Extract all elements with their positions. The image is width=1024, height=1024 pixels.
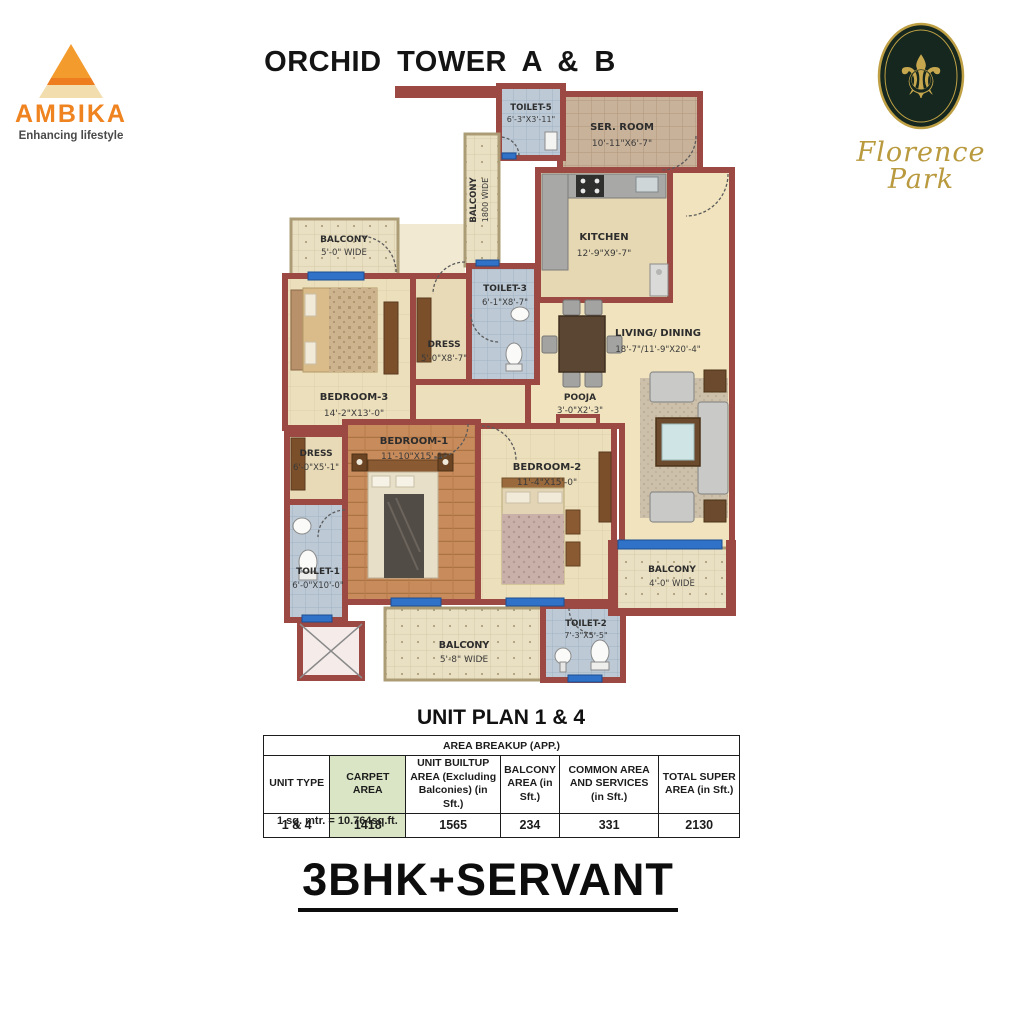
wardrobe-icon (599, 452, 611, 522)
unit-plan-title: UNIT PLAN 1 & 4 (263, 706, 739, 730)
col-total-area: TOTAL SUPER AREA (in Sft.) (659, 756, 740, 814)
label-bedroom3: BEDROOM-3 (320, 392, 389, 403)
bed-icon (368, 460, 438, 578)
washbasin-icon (511, 307, 529, 321)
side-table-icon (704, 370, 726, 392)
label-balcony-bottom: BALCONY (439, 640, 490, 651)
dims-bedroom3: 14'-2"X13'-0" (324, 409, 384, 419)
dresser-icon (384, 302, 398, 374)
dims-pooja: 3'-0"X2'-3" (557, 406, 603, 416)
florence-park-logo: ⚜ Florence Park (826, 20, 1016, 193)
label-toilet3: TOILET-3 (483, 284, 527, 294)
dims-toilet2: 7'-3"X5'-5" (564, 631, 607, 640)
bed-icon (502, 478, 564, 584)
col-balcony-area: BALCONY AREA (in Sft.) (501, 756, 560, 814)
dims-toilet5: 6'-3"X3'-11" (507, 115, 555, 124)
washbasin-icon (545, 132, 557, 150)
stove-icon (576, 175, 604, 197)
label-pooja: POOJA (564, 393, 596, 403)
val-balcony: 234 (501, 813, 560, 837)
dims-balcony-right: 4'-0" WIDE (649, 579, 695, 589)
sink-icon (636, 177, 658, 192)
side-table-icon (704, 500, 726, 522)
wall-balcony-left (608, 540, 618, 612)
label-dress3: DRESS (427, 340, 460, 350)
label-balcony-side: BALCONY (469, 177, 479, 223)
col-unit-type: UNIT TYPE (264, 756, 330, 814)
kitchen-counter-left (542, 174, 568, 270)
fridge-icon (650, 264, 668, 296)
bed-icon (291, 288, 377, 372)
dims-toilet3: 6'-1"X8'-7" (482, 298, 528, 308)
ambika-tagline: Enhancing lifestyle (6, 130, 136, 142)
dims-dress1: 6'-0"X5'-1" (293, 463, 339, 473)
floor-plan: TOILET-5 6'-3"X3'-11" SER. ROOM 10'-11"X… (266, 74, 750, 716)
val-common: 331 (559, 813, 659, 837)
sofa-icon (640, 370, 728, 522)
room-bedroom2 (478, 426, 614, 602)
plan-type-title: 3BHK+SERVANT (238, 854, 738, 912)
label-dress1: DRESS (299, 449, 332, 459)
label-toilet2: TOILET-2 (565, 619, 606, 629)
fleur-de-lis-icon: ⚜ (826, 20, 1016, 132)
dims-bedroom1: 11'-10"X15'-1" (381, 452, 447, 462)
dims-toilet1: 6'-0"X10'-0" (292, 581, 344, 591)
wardrobe-icon (417, 298, 431, 362)
wall-right (726, 540, 736, 616)
dims-kitchen: 12'-9"X9'-7" (577, 249, 632, 259)
nightstand-icon (352, 454, 367, 471)
table-caption: AREA BREAKUP (APP.) (264, 736, 740, 756)
bench-icon (566, 510, 580, 534)
dims-balcony-side: 1800 WIDE (481, 178, 490, 222)
washbasin-icon (293, 518, 311, 534)
wall-stub (395, 86, 501, 98)
wc-icon (591, 640, 609, 670)
label-bedroom1: BEDROOM-1 (380, 436, 449, 447)
label-balcony-right: BALCONY (648, 565, 696, 575)
passage-upper (398, 224, 465, 276)
col-builtup-area: UNIT BUILTUP AREA (Excluding Balconies) … (406, 756, 501, 814)
label-kitchen: KITCHEN (579, 232, 628, 243)
page: AMBIKA Enhancing lifestyle ORCHID TOWER … (0, 0, 1024, 1024)
label-balcony-tl: BALCONY (320, 235, 368, 245)
room-toilet1 (287, 502, 345, 620)
room-toilet2 (543, 606, 623, 680)
ambika-name: AMBIKA (6, 102, 136, 127)
plan-type-text: 3BHK+SERVANT (298, 854, 678, 912)
label-toilet5: TOILET-5 (510, 103, 551, 113)
bench-icon (566, 542, 580, 566)
dims-balcony-bottom: 5'-8" WIDE (440, 655, 489, 665)
room-bedroom3 (285, 276, 413, 428)
room-dress3 (413, 276, 469, 382)
label-bedroom2: BEDROOM-2 (513, 462, 582, 473)
val-total: 2130 (659, 813, 740, 837)
coffee-table-icon (656, 418, 700, 466)
florence-park-name: Florence Park (826, 139, 1016, 193)
label-living: LIVING/ DINING (615, 328, 701, 339)
dims-balcony-tl: 5'-0" WIDE (321, 248, 367, 258)
svg-text:⚜: ⚜ (894, 43, 948, 113)
ambika-triangle-icon (38, 44, 104, 100)
room-bedroom1 (345, 422, 478, 602)
dims-bedroom2: 11'-4"X15'-0" (517, 478, 577, 488)
ambika-logo: AMBIKA Enhancing lifestyle (6, 44, 136, 142)
dims-servant: 10'-11"X6'-7" (592, 139, 652, 149)
label-servant: SER. ROOM (590, 122, 654, 133)
val-builtup: 1565 (406, 813, 501, 837)
wc-icon (506, 343, 522, 371)
conversion-note: 1 sq. mtr. = 10.764sq.ft. (277, 815, 398, 827)
dims-living: 18'-7"/11'-9"X20'-4" (615, 345, 700, 355)
col-carpet-area: CARPET AREA (330, 756, 406, 814)
table-header-row: UNIT TYPE CARPET AREA UNIT BUILTUP AREA … (264, 756, 740, 814)
col-common-area: COMMON AREA AND SERVICES (in Sft.) (559, 756, 659, 814)
shaft (300, 624, 362, 678)
label-toilet1: TOILET-1 (296, 567, 340, 577)
wall-balcony-bottom (608, 608, 736, 616)
floor-plan-drawing: TOILET-5 6'-3"X3'-11" SER. ROOM 10'-11"X… (266, 74, 750, 716)
dims-dress3: 5'-0"X8'-7" (421, 354, 467, 364)
